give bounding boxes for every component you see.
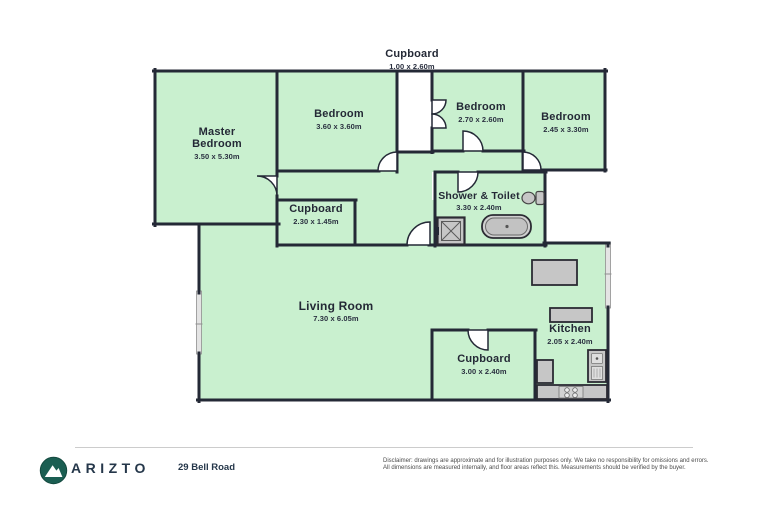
stove-counter [537, 385, 607, 399]
shower-valve [434, 227, 439, 235]
room-dims: 3.30 x 2.40m [438, 203, 520, 212]
window-left [197, 291, 202, 354]
label-kitchen: Kitchen 2.05 x 2.40m [547, 324, 592, 346]
room-name: Kitchen [547, 324, 592, 336]
room-name: Cupboard [289, 204, 343, 216]
label-cupboard-hall: Cupboard 2.30 x 1.45m [289, 204, 343, 226]
room-dims: 2.45 x 3.30m [541, 125, 591, 134]
bathtub [482, 215, 531, 238]
hallway-floor [397, 152, 432, 171]
label-bedroom-2: Bedroom 2.70 x 2.60m [456, 102, 506, 124]
room-name: Bedroom [314, 109, 364, 121]
footer-divider [75, 447, 693, 448]
stove [559, 387, 583, 399]
kitchen-bench-lower [550, 308, 592, 322]
room-name: Master Bedroom [185, 127, 249, 151]
room-name: Bedroom [541, 112, 591, 124]
toilet [522, 192, 544, 205]
label-bedroom-1: Bedroom 3.60 x 3.60m [314, 109, 364, 131]
kitchen-bench-upper [532, 260, 577, 285]
room-dims: 1.00 x 2.60m [385, 62, 439, 71]
room-name: Bedroom [456, 102, 506, 114]
room-name: Cupboard [457, 354, 511, 366]
room-name: Cupboard [385, 49, 439, 61]
label-cupboard-living: Cupboard 3.00 x 2.40m [457, 354, 511, 376]
kitchen-cabinet [537, 360, 553, 383]
room-dims: 2.30 x 1.45m [289, 217, 343, 226]
room-dims: 3.00 x 2.40m [457, 367, 511, 376]
label-master-bedroom: Master Bedroom 3.50 x 5.30m [185, 127, 249, 161]
arizto-logo-icon [39, 456, 69, 486]
hallway-floor [277, 171, 432, 200]
label-cupboard-top: Cupboard 1.00 x 2.60m [385, 49, 439, 71]
disclaimer-line-1: Disclaimer: drawings are approximate and… [383, 458, 728, 465]
label-shower-toilet: Shower & Toilet 3.30 x 2.40m [438, 191, 520, 212]
brand-name: ARIZTO [71, 460, 150, 476]
label-living-room: Living Room 7.30 x 6.05m [299, 300, 374, 323]
room-dims: 3.50 x 5.30m [185, 152, 249, 161]
sink-faucet [596, 357, 599, 360]
room-dims: 3.60 x 3.60m [314, 122, 364, 131]
bathtub-drain [505, 225, 508, 228]
shower-unit [434, 218, 465, 245]
room-dims: 2.05 x 2.40m [547, 337, 592, 346]
room-name: Living Room [299, 300, 374, 313]
window-right [606, 242, 611, 308]
floor-plan-canvas [0, 0, 768, 512]
room-floors [155, 71, 608, 400]
disclaimer-text: Disclaimer: drawings are approximate and… [383, 458, 728, 472]
disclaimer-line-2: All dimensions are measured internally, … [383, 465, 728, 472]
room-dims: 7.30 x 6.05m [299, 314, 374, 323]
floor-plan-page: Cupboard 1.00 x 2.60m Master Bedroom 3.5… [0, 0, 768, 512]
sink-unit [588, 350, 606, 382]
label-bedroom-3: Bedroom 2.45 x 3.30m [541, 112, 591, 134]
room-name: Shower & Toilet [438, 191, 520, 202]
property-address: 29 Bell Road [178, 462, 235, 473]
room-dims: 2.70 x 2.60m [456, 115, 506, 124]
